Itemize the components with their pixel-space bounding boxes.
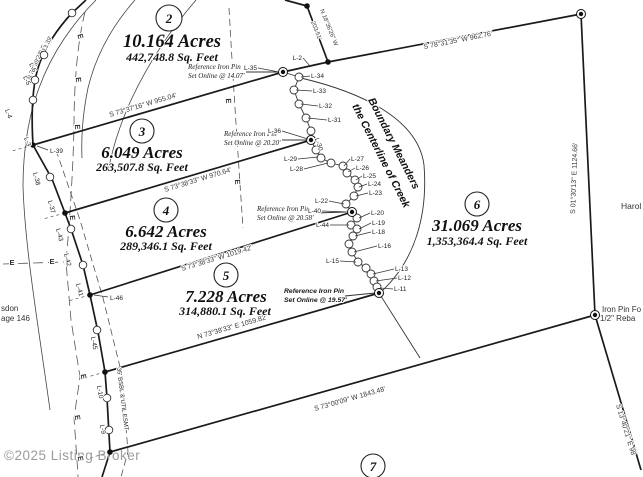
boundary-l2-segment: [283, 62, 328, 72]
road-point-label: L-46: [110, 295, 123, 302]
plat-drawing: S 73°37'16" W 955.04' S 78°31'35" W 962.…: [0, 0, 643, 477]
creek-point-label: L-12: [398, 275, 411, 282]
easement-label: 35' BSBL & UTIL ESMT: [115, 368, 129, 432]
electric-line-e-symbol: E: [68, 215, 77, 221]
pin-note-3: Reference Iron Pin Set Online @ 20.58': [256, 205, 314, 222]
lot-line-extensions: [12, 145, 110, 458]
creek-extension: [379, 293, 420, 358]
creek-point-label: L-29: [284, 156, 297, 163]
lot-number: 5: [223, 268, 230, 283]
creek-label-leader: [258, 68, 279, 72]
pin-note-line1: Reference Iron Pin: [284, 288, 344, 295]
creek-label-leader: [304, 163, 328, 169]
road-vertex-circle: [79, 261, 87, 269]
electric-line-e-symbol: E: [74, 77, 83, 83]
lot-4-sqft: 289,346.1 Sq. Feet: [119, 239, 212, 253]
creek-label-leader: [301, 104, 318, 106]
bearing-distance: 203.51': [309, 21, 322, 41]
lot-5-sqft: 314,880.1 Sq. Feet: [178, 304, 271, 318]
pin-note-line2: Set Online @ 20.20': [224, 139, 281, 147]
creek-point-label: L-34: [311, 73, 324, 80]
electric-line-e-symbol: E: [233, 179, 242, 184]
creek-point-label: L-32: [319, 103, 332, 110]
creek-label-leader: [308, 118, 327, 120]
setback-line-bsbl: [56, 150, 128, 477]
pin-note-line1: Reference Iron Pin: [256, 205, 310, 213]
pin-note-4: Reference Iron Pin Set Online @ 19.57': [284, 288, 347, 304]
creek-point-label: L-31: [328, 117, 341, 124]
creek-vertex-circle: [327, 159, 335, 167]
lot-6-sqft: 1,353,364.4 Sq. Feet: [427, 234, 528, 248]
pin-note-line2: Set Online @ 14.07': [188, 72, 245, 80]
iron-pin-marker-dot: [309, 138, 313, 142]
boundary-south: [110, 315, 595, 452]
creek-vertex-circle: [345, 240, 353, 248]
creek-point-label: L-26: [356, 165, 369, 172]
lot-number: 6: [474, 197, 481, 212]
electric-line-e-symbol: E: [73, 124, 82, 129]
creek-vertex-circle: [307, 127, 315, 135]
road-point-label: L-42: [62, 253, 72, 268]
corner-dot: [102, 369, 108, 375]
creek-vertex-circle: [354, 183, 362, 191]
watermark: ©2025 Listing Broker: [4, 448, 140, 463]
iron-pin-found-label-line1: Iron Pin Fo: [602, 305, 642, 314]
electric-line-e-symbol: E: [79, 373, 89, 380]
iron-pin-found-label-line2: 1/2" Reba: [600, 314, 636, 323]
creek-point-label: L-24: [368, 181, 381, 188]
electric-line-e-symbol: E: [73, 414, 83, 421]
lot-6-badge: 6: [465, 192, 489, 216]
creek-vertex-circle: [317, 154, 325, 162]
bearing-label: S 78°31'35" W 962.76': [423, 30, 493, 51]
lot-number: 3: [138, 124, 146, 139]
iron-pin-marker-dot: [281, 70, 285, 74]
creek-point-label: L-15: [326, 258, 339, 265]
creek-label-leader: [282, 131, 308, 139]
road-boundary-line: [32, 0, 110, 477]
pin-note-1: Reference Iron Pin Set Online @ 14.07': [187, 63, 245, 80]
lot-3-sqft: 263,507.8 Sq. Feet: [95, 160, 188, 174]
road-vertex-circle: [46, 173, 54, 181]
road-vertex-circle: [40, 51, 48, 59]
creek-label-leader: [340, 261, 356, 262]
road-point-label: L-39: [50, 148, 63, 155]
road-vertex-circle: [68, 9, 76, 17]
creek-label-leader: [329, 201, 344, 204]
electric-line-e-symbol: E: [224, 98, 233, 103]
road-point-label: L-41: [74, 283, 84, 298]
corner-dot: [304, 3, 310, 9]
electric-line-e-symbol: E: [49, 257, 54, 266]
iron-pin-marker-dot: [377, 291, 381, 295]
iron-pin-marker-dot: [593, 313, 597, 317]
lot-4-badge: 4: [154, 198, 178, 222]
lot-5-badge: 5: [214, 263, 238, 287]
creek-point-label: L-19: [372, 220, 385, 227]
corner-dot: [107, 449, 113, 455]
creek-point-label: L-11: [394, 286, 407, 293]
creek-label-leader: [296, 90, 312, 91]
pin-note-line2: Set Online @ 20.58': [257, 214, 314, 222]
creek-label-leader: [359, 223, 371, 229]
creek-vertex-circle: [343, 169, 351, 177]
corner-dot: [62, 210, 68, 216]
bearing-label: S 13°40'21" E 98: [614, 403, 637, 456]
lot-number: 4: [162, 203, 170, 218]
boundary-east: [581, 14, 595, 315]
survey-plat: S 73°37'16" W 955.04' S 78°31'35" W 962.…: [0, 0, 643, 477]
electric-line-e-symbol: E: [9, 258, 14, 267]
lot-7-badge: 7: [361, 454, 385, 477]
lot-6-acres: 31.069 Acres: [431, 216, 522, 235]
creek-label-leader: [373, 269, 394, 274]
road-point-label: L-9: [98, 424, 107, 435]
road-point-label: L-45: [89, 336, 98, 350]
lot-3-badge: 3: [130, 119, 154, 143]
corner-dot: [87, 292, 93, 298]
road-vertex-circle: [67, 225, 75, 233]
creek-point-label: L-25: [363, 173, 376, 180]
creek-point-label: L-27: [351, 156, 364, 163]
creek-point-label: L-44: [316, 222, 329, 229]
bearing-label: S 01°30'13" E 1124.66': [569, 143, 579, 215]
iron-pin-marker-dot: [579, 12, 583, 16]
bearing-label: S 73°00'09" W 1843.48': [313, 385, 386, 413]
pin-note-line1: Reference Iron Pin: [187, 63, 241, 71]
corner-dot: [325, 59, 331, 65]
creek-label-leader: [322, 211, 348, 212]
lot-2-sqft: 442,748.8 Sq. Feet: [125, 50, 218, 64]
creek-label-leader: [298, 157, 318, 159]
road-vertex-circle: [29, 96, 37, 104]
road-branch-dashed: [229, 8, 243, 228]
creek-point-label: L-16: [378, 243, 391, 250]
electric-line-e-symbol: E: [75, 33, 85, 40]
creek-point-label: L-40: [308, 208, 321, 215]
road-vertex-circle: [93, 326, 101, 334]
pin-note-line2: Set Online @ 19.57': [284, 297, 347, 304]
lot-2-acres: 10.164 Acres: [123, 32, 221, 52]
road-point-label: L-38: [31, 172, 41, 187]
creek-point-label: L-35: [244, 65, 257, 72]
lot-2-badge: 2: [156, 5, 182, 31]
iron-pin-marker-dot: [350, 210, 354, 214]
creek-label-leader: [376, 278, 397, 281]
creek-label-leader: [380, 288, 393, 289]
road-point-label: L-4: [3, 108, 13, 120]
road-vertex-circle: [31, 76, 39, 84]
creek-point-label: L-36: [268, 128, 281, 135]
creek-point-label: L-23: [369, 190, 382, 197]
road-label-leader: [94, 295, 108, 297]
creek-point-label: L-2: [293, 55, 303, 62]
creek-label-leader: [303, 58, 310, 66]
creek-point-label: L-18: [372, 229, 385, 236]
creek-point-label: L-28: [290, 166, 303, 173]
creek-point-label: L-22: [315, 198, 328, 205]
creek-point-label: L-13: [395, 266, 408, 273]
lot-number: 7: [370, 459, 377, 474]
creek-label-leader: [354, 246, 377, 252]
road-point-label: L-43: [54, 228, 64, 243]
creek-point-label: L-33: [313, 88, 326, 95]
road-edge-east-top: [82, 0, 135, 158]
road-point-label: L-10: [95, 385, 104, 399]
road-label-leader: [37, 146, 48, 150]
deed-reference-line2: age 146: [1, 314, 30, 323]
creek-point-label: L-20: [371, 210, 384, 217]
lot-number: 2: [165, 11, 173, 26]
adjoiner-name-label: Harol: [621, 201, 641, 211]
road-point-label: L-37: [46, 200, 56, 215]
deed-reference-line1: sdon: [1, 304, 18, 313]
